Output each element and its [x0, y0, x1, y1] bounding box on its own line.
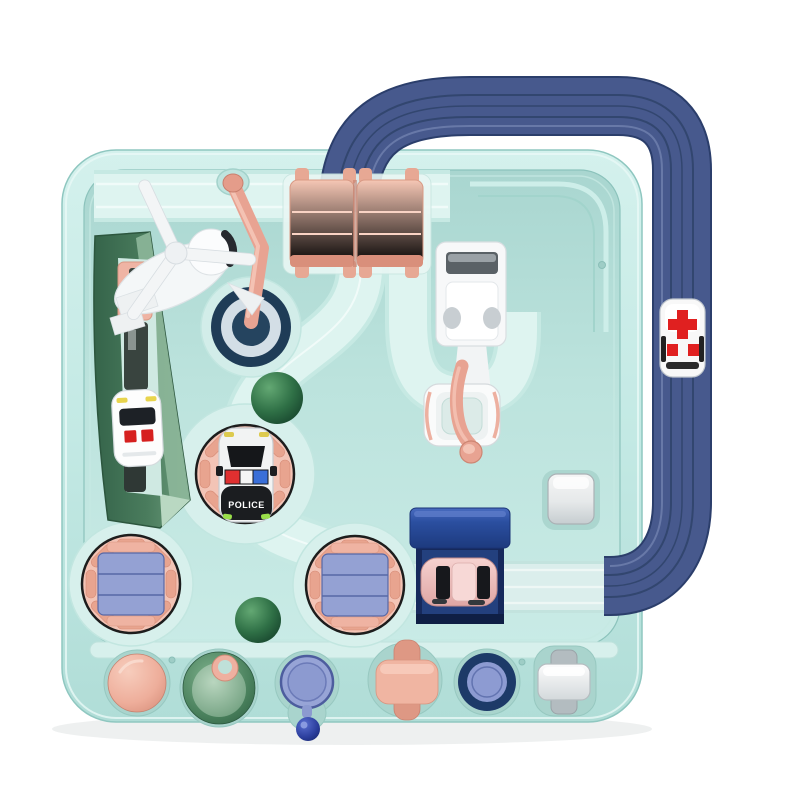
scene-canvas: POLICE [0, 0, 800, 800]
ambulance [660, 299, 705, 377]
navy-ring-button [458, 653, 516, 711]
toy-track-product-photo: POLICE [0, 0, 800, 800]
green-dome-top [251, 372, 303, 424]
police-lightbar [225, 470, 268, 484]
police-car: POLICE [216, 428, 277, 522]
turntable-middle [306, 536, 404, 634]
white-train [111, 389, 164, 467]
green-dome-bottom [235, 597, 281, 643]
garage [410, 508, 510, 624]
pink-dome-button [108, 654, 166, 712]
green-cone-button [183, 652, 255, 724]
pink-car [421, 558, 497, 606]
turntable-left [82, 535, 180, 633]
flip-bridge [283, 168, 431, 278]
cube-button [542, 470, 600, 530]
police-label: POLICE [228, 500, 265, 510]
